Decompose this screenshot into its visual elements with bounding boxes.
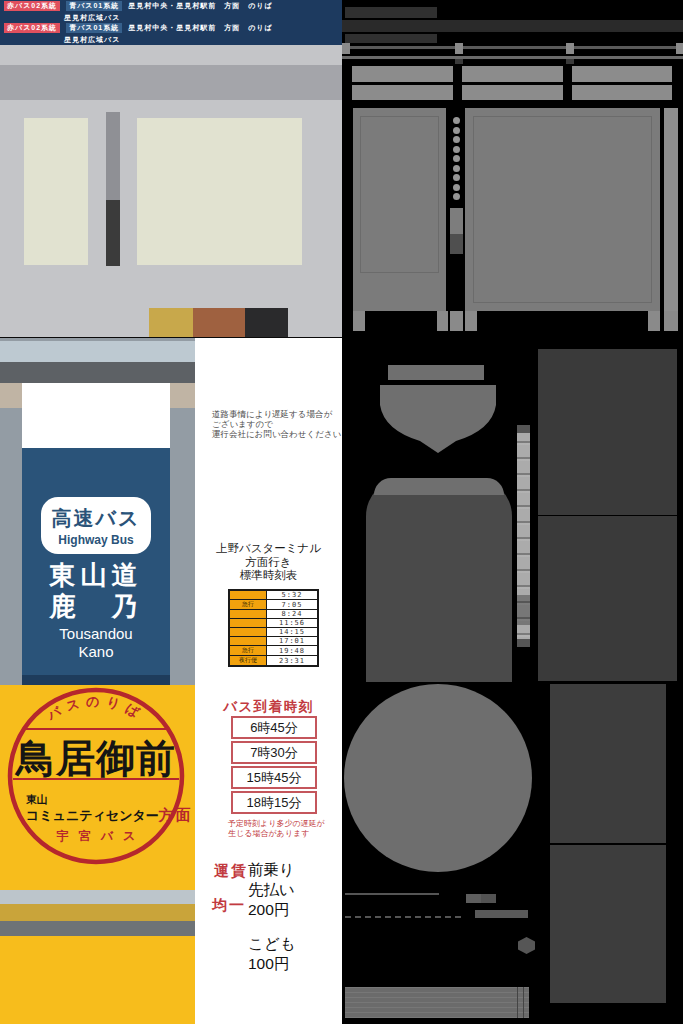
roof-strip <box>345 7 437 18</box>
arrival-board-title: バス到着時刻 <box>195 698 342 716</box>
cream-panel-large <box>137 118 302 265</box>
step-bar-seam <box>517 987 518 1018</box>
operator-name: 宇宮バス <box>0 828 192 845</box>
service-type-cell <box>229 619 267 628</box>
timetable-row: 夜行便23:31 <box>229 656 318 667</box>
service-type-cell: 急行 <box>229 646 267 656</box>
shelf-board <box>462 85 563 100</box>
rail-clip <box>566 59 574 64</box>
arrival-time: 18時15分 <box>231 791 317 814</box>
shelf-board <box>572 85 672 100</box>
panel-leg <box>437 311 448 331</box>
panel-inset <box>360 116 439 273</box>
step-bar-seam <box>523 987 524 1018</box>
rivet-dot <box>453 165 460 172</box>
small-block <box>466 894 481 903</box>
band-lightblue <box>0 890 195 904</box>
highway-destination-line1: 東山道 <box>22 558 170 593</box>
time-cell: 8:24 <box>267 610 319 619</box>
small-block <box>481 894 496 903</box>
panel-inset <box>473 116 652 303</box>
service-type-cell <box>229 628 267 637</box>
route-banner: 赤バス02系統 青バス01系統 星見村中央・星見村駅前 方面 のりば 星見村広域… <box>0 0 342 45</box>
delay-notice-line1: 道路事情により遅延する場合が <box>212 409 341 419</box>
dark-panel <box>538 349 677 515</box>
support-pole <box>517 425 530 647</box>
rail-tab <box>455 43 463 54</box>
seat-body <box>366 478 512 682</box>
time-cell: 5:32 <box>267 590 319 600</box>
arrival-note-line1: 予定時刻より多少の遅延が <box>228 819 325 829</box>
service-type-cell: 夜行便 <box>229 656 267 667</box>
small-bar <box>475 910 528 918</box>
time-cell: 14:15 <box>267 628 319 637</box>
pole-grip <box>517 595 530 625</box>
timetable-header-line3: 標準時刻表 <box>195 569 342 583</box>
edge-strip <box>664 108 678 311</box>
panel-leg <box>353 311 365 331</box>
adult-price: 200円 <box>248 900 295 920</box>
hex-nut <box>518 937 535 954</box>
service-type-cell: 急行 <box>229 600 267 610</box>
rail-clip <box>455 59 463 64</box>
rivet-dot <box>453 174 460 181</box>
red-route-badge: 赤バス02系統 <box>4 23 60 33</box>
rivet-dot <box>453 136 460 143</box>
destination-text: 星見村中央・星見村駅前 方面 のりば <box>128 1 273 11</box>
departure-timetable: 5:32 急行7:05 8:24 11:56 14:15 17:01 急行19:… <box>228 589 319 667</box>
arrival-note: 予定時刻より多少の遅延が 生じる場合があります <box>228 819 325 838</box>
timetable-row: 急行7:05 <box>229 600 318 610</box>
model-parts-region <box>342 0 683 1024</box>
pole-cap <box>517 425 530 433</box>
service-type-cell <box>229 637 267 646</box>
arrival-time: 15時45分 <box>231 766 317 789</box>
highway-bus-sign: 高速バス Highway Bus 東山道 鹿 乃 Tousandou Kano <box>22 448 170 675</box>
fare-label: 運賃 <box>214 862 248 881</box>
materials-area <box>0 45 342 338</box>
rail-bar <box>342 56 683 59</box>
highway-bus-title-en: Highway Bus <box>58 533 133 547</box>
band-gray <box>0 921 195 936</box>
highway-bus-title-jp: 高速バス <box>52 505 141 532</box>
timetable-row: 17:01 <box>229 637 318 646</box>
shelf-board <box>352 66 453 82</box>
delay-notice: 道路事情により遅延する場合が ございますので 運行会社にお問い合わせください <box>212 409 341 439</box>
boarding-rule-line1: 前乗り <box>248 860 295 880</box>
destination-text: 星見村中央・星見村駅前 方面 のりば <box>128 23 273 33</box>
wheel-disc <box>344 684 532 872</box>
roof-strip <box>345 34 437 43</box>
timetable-row: 8:24 <box>229 610 318 619</box>
pole-cap <box>517 639 530 647</box>
thin-rod-dashed <box>345 916 461 918</box>
timetable-header-line2: 方面行き <box>195 556 342 570</box>
dark-panel <box>550 684 666 843</box>
arrival-time: 7時30分 <box>231 741 317 764</box>
fare-child-block: こども 100円 <box>248 934 296 974</box>
shelf-board <box>572 66 672 82</box>
swatch-gold <box>149 308 193 337</box>
delay-notice-line3: 運行会社にお問い合わせください <box>212 429 341 439</box>
timetable-row: 14:15 <box>229 628 318 637</box>
rivet-dot <box>453 117 460 124</box>
wide-area-bus-text: 星見村広域バス <box>64 35 120 45</box>
area-name-small: 東山 <box>26 793 47 807</box>
timetable-header: 上野バスターミナル 方面行き 標準時刻表 <box>195 542 342 583</box>
shelf-board <box>462 66 563 82</box>
time-cell: 11:56 <box>267 619 319 628</box>
swatch-dark <box>245 308 288 337</box>
rail-tab <box>676 43 683 54</box>
panel-leg <box>465 311 477 331</box>
highway-romaji-line2: Kano <box>22 643 170 660</box>
time-cell: 7:05 <box>267 600 319 610</box>
panel-leg <box>450 311 463 331</box>
roof-strip-wide <box>342 20 683 32</box>
fare-adult-block: 前乗り 先払い 200円 <box>248 860 295 920</box>
service-type-cell <box>229 590 267 600</box>
boarding-rule-line2: 先払い <box>248 880 295 900</box>
rail-tab <box>342 43 350 54</box>
route-banner-row: 赤バス02系統 青バス01系統 星見村中央・星見村駅前 方面 のりば <box>4 23 273 33</box>
post-strip-gray <box>106 112 120 200</box>
time-cell: 23:31 <box>267 656 319 667</box>
time-cell: 17:01 <box>267 637 319 646</box>
sign-bottom-strip <box>22 675 170 685</box>
rivet-dot <box>453 184 460 191</box>
seat-back-bowl <box>380 383 496 463</box>
rivet-dot <box>453 127 460 134</box>
route-banner-row: 赤バス02系統 青バス01系統 星見村中央・星見村駅前 方面 のりば <box>4 1 273 11</box>
shelf-board <box>352 85 453 100</box>
rivet-dot <box>453 155 460 162</box>
timetable-row: 5:32 <box>229 590 318 600</box>
timetable-header-line1: 上野バスターミナル <box>195 542 342 556</box>
band-gold <box>0 904 195 921</box>
arrival-note-line2: 生じる場合があります <box>228 829 325 839</box>
red-route-badge: 赤バス02系統 <box>4 1 60 11</box>
time-cell: 19:48 <box>267 646 319 656</box>
panel-leg <box>664 311 678 331</box>
bus-stop-texture-atlas: 赤バス02系統 青バス01系統 星見村中央・星見村駅前 方面 のりば 星見村広域… <box>0 0 683 1024</box>
band-lightblue <box>0 341 195 362</box>
step-bar <box>345 987 529 1018</box>
area-direction-line: コミュニティセンター方面 <box>26 806 193 825</box>
rivet-dot <box>453 146 460 153</box>
arrival-time: 6時45分 <box>231 716 317 739</box>
highway-destination-line2: 鹿 乃 <box>22 589 170 624</box>
timetable-row: 急行19:48 <box>229 646 318 656</box>
gray-band <box>0 65 342 100</box>
blue-route-badge: 青バス01系統 <box>66 1 122 11</box>
swatch-brown <box>193 308 245 337</box>
rail-tab <box>566 43 574 54</box>
latch-block <box>450 208 463 234</box>
rivet-dot <box>453 193 460 200</box>
highway-bus-pill: 高速バス Highway Bus <box>41 497 151 554</box>
delay-notice-line2: ございますので <box>212 419 341 429</box>
dark-panel <box>538 516 677 681</box>
dark-panel <box>550 845 666 1003</box>
direction-suffix: 方面 <box>159 806 193 823</box>
post-strip-dark <box>106 200 120 266</box>
highway-romaji-line1: Tousandou <box>22 625 170 642</box>
latch-block-dark <box>450 234 463 254</box>
area-name-main: コミュニティセンター <box>26 808 159 823</box>
service-type-cell <box>229 610 267 619</box>
blue-route-badge: 青バス01系統 <box>66 23 122 33</box>
stop-name: 鳥居御前 <box>0 732 192 786</box>
panel-leg <box>648 311 660 331</box>
flat-fare-label: 均一 <box>212 896 246 915</box>
child-label: こども <box>248 934 296 954</box>
timetable-row: 11:56 <box>229 619 318 628</box>
seat-body-rim <box>374 478 504 495</box>
cream-panel-small <box>24 118 88 265</box>
arrival-board: 6時45分 7時30分 15時45分 18時15分 <box>231 716 317 816</box>
band-darkgray <box>0 362 195 383</box>
child-price: 100円 <box>248 954 296 974</box>
wide-area-bus-text: 星見村広域バス <box>64 13 120 23</box>
seat-top-bar <box>388 365 484 380</box>
sign-white-top <box>22 383 170 448</box>
info-column: 道路事情により遅延する場合が ございますので 運行会社にお問い合わせください 上… <box>195 338 342 1024</box>
wall-panel-left <box>353 108 446 311</box>
bus-stop-sign: バスのりば 鳥居御前 東山 コミュニティセンター方面 宇宮バス <box>0 685 195 1024</box>
wall-panel-right <box>465 108 660 311</box>
thin-rod <box>345 893 439 895</box>
rail-bar <box>342 46 683 49</box>
